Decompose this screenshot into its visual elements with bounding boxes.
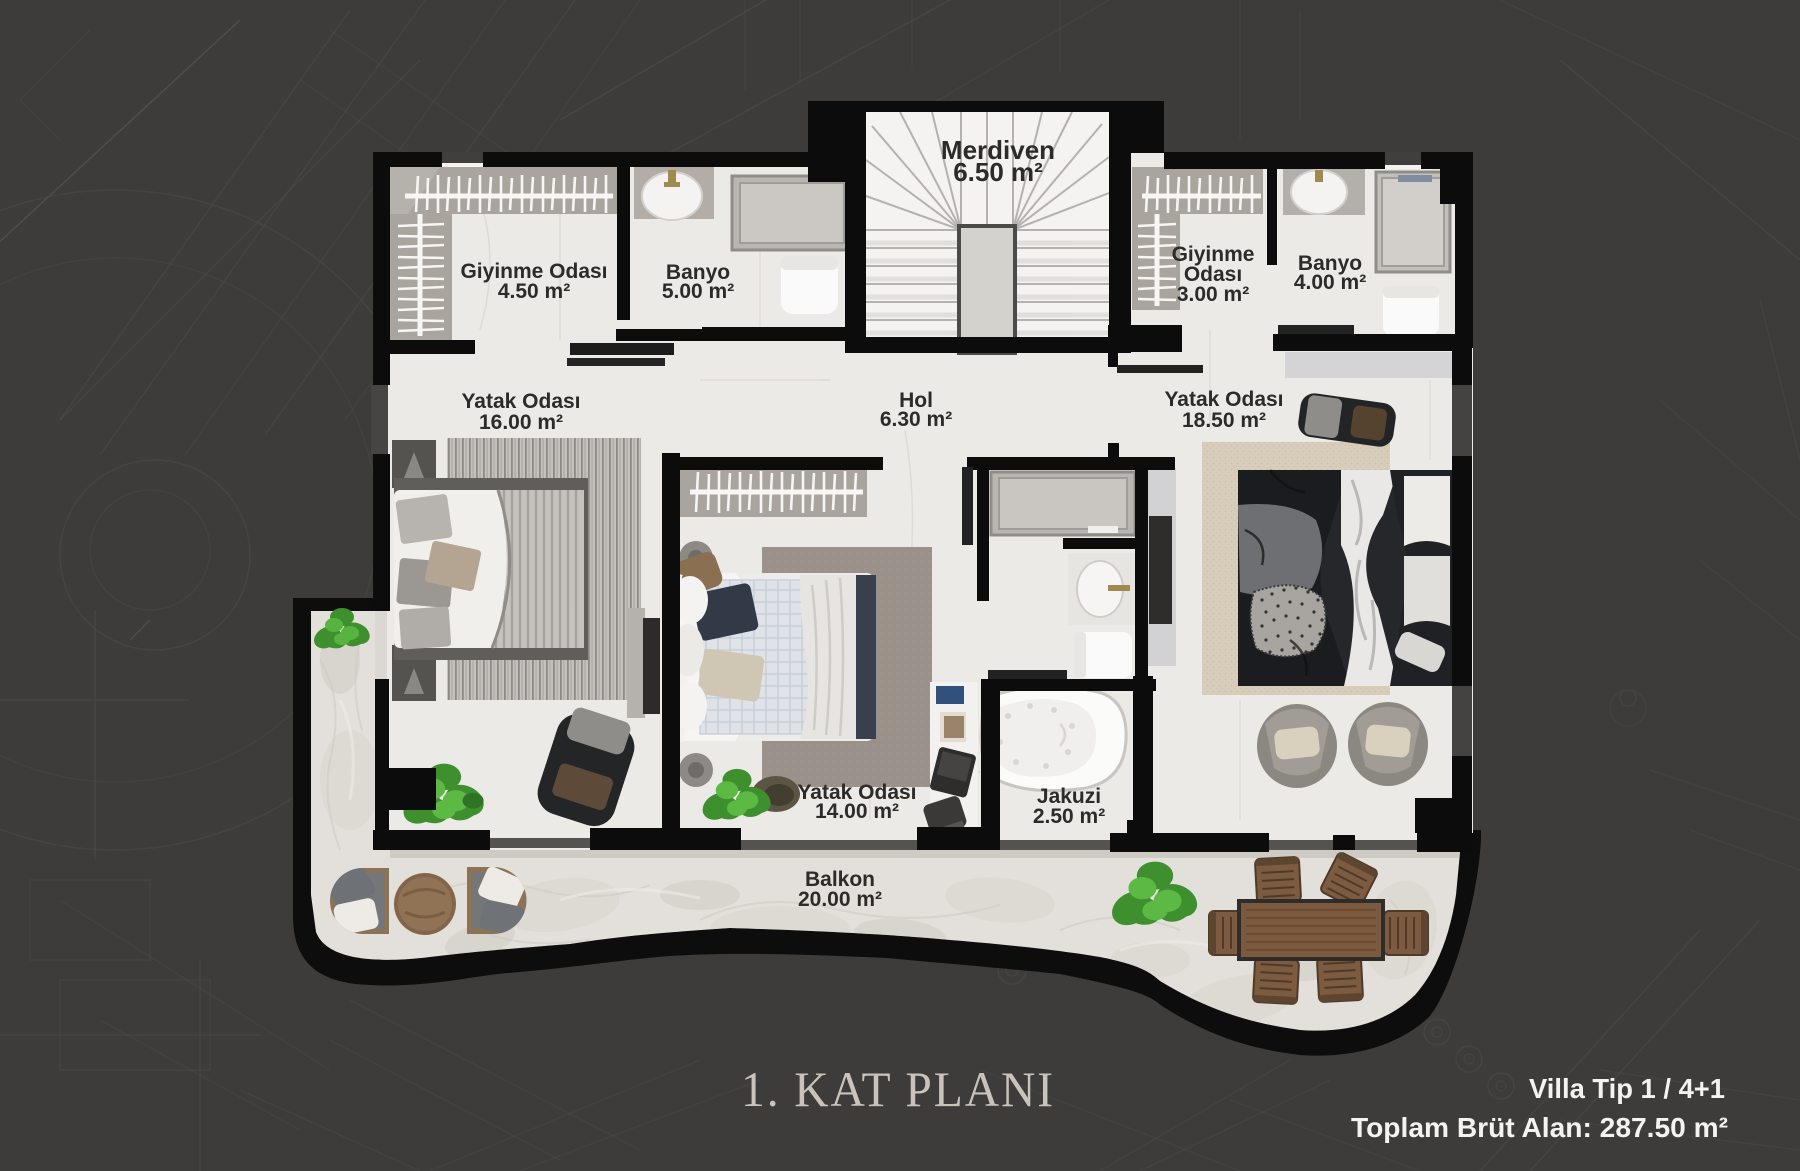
svg-text:4.50 m²: 4.50 m² [498,280,570,303]
svg-text:Toplam Brüt Alan: 287.50 m²: Toplam Brüt Alan: 287.50 m² [1351,1112,1728,1143]
svg-text:4.00 m²: 4.00 m² [1294,271,1366,294]
svg-text:14.00 m²: 14.00 m² [815,800,899,823]
svg-text:1. KAT PLANI: 1. KAT PLANI [741,1061,1055,1117]
svg-text:16.00 m²: 16.00 m² [479,411,563,434]
svg-text:Yatak Odası: Yatak Odası [461,390,580,413]
svg-text:18.50 m²: 18.50 m² [1182,409,1266,432]
svg-text:3.00 m²: 3.00 m² [1177,283,1249,306]
svg-text:5.00 m²: 5.00 m² [662,280,734,303]
svg-text:6.50 m²: 6.50 m² [953,157,1043,187]
svg-text:2.50 m²: 2.50 m² [1033,805,1105,828]
svg-text:Villa Tip 1 / 4+1: Villa Tip 1 / 4+1 [1529,1073,1725,1104]
svg-text:Yatak Odası: Yatak Odası [1164,388,1283,411]
svg-text:6.30 m²: 6.30 m² [880,408,952,431]
svg-text:20.00 m²: 20.00 m² [798,888,882,911]
